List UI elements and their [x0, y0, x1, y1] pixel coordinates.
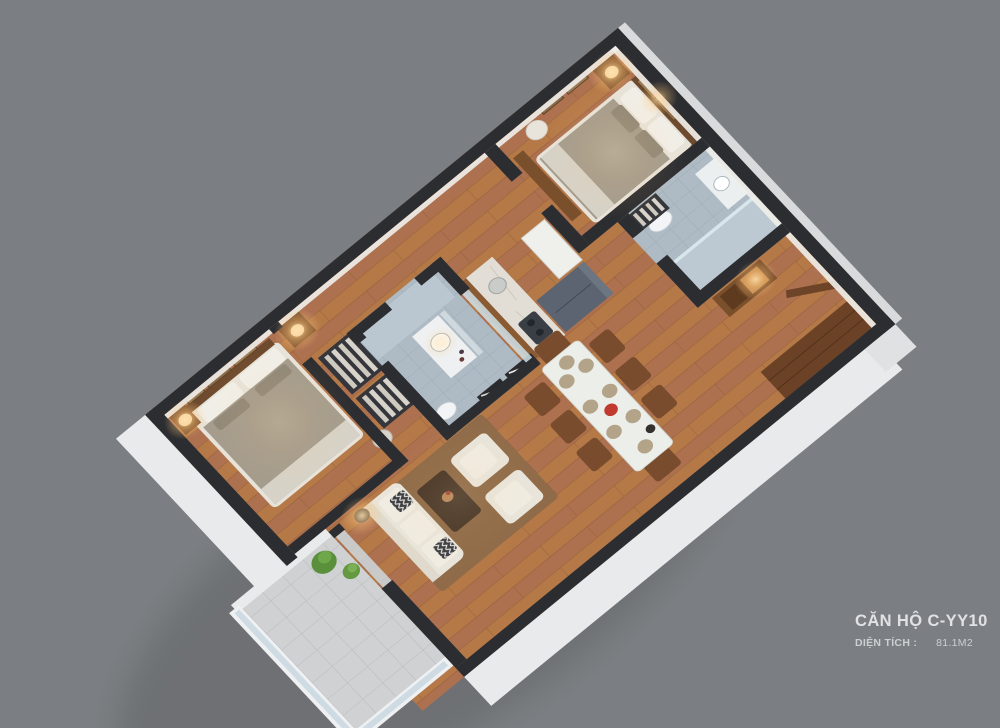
floorplan-render: CĂN HỘ C-YY10 DIỆN TÍCH : 81.1M2 [0, 0, 1000, 728]
apartment-3d-floorplan [0, 0, 1000, 728]
area-value: 81.1M2 [936, 637, 973, 649]
area-row: DIỆN TÍCH : 81.1M2 [855, 637, 973, 649]
area-label: DIỆN TÍCH : [855, 637, 917, 649]
caption-block: CĂN HỘ C-YY10 DIỆN TÍCH : 81.1M2 [855, 612, 973, 649]
apartment-title: CĂN HỘ C-YY10 [855, 612, 973, 631]
